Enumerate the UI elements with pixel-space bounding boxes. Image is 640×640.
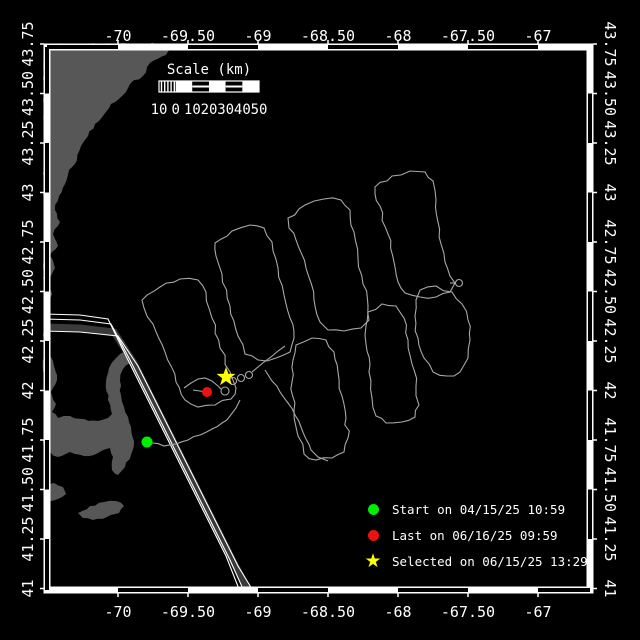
lon-label-top: -70 xyxy=(104,27,131,45)
lat-label-left: 41.50 xyxy=(19,467,37,512)
lon-label-top: -67 xyxy=(524,27,551,45)
scalebar-number: 10 xyxy=(151,102,168,118)
lon-label-bottom: -67.50 xyxy=(441,603,495,621)
scalebar-number: 20 xyxy=(201,102,218,118)
shipping-lane-band xyxy=(44,327,248,589)
lat-label-left: 41.25 xyxy=(19,516,37,561)
scalebar-number: 40 xyxy=(234,102,251,118)
shipping-lane-edge xyxy=(44,331,252,589)
lat-label-left: 42.75 xyxy=(19,219,37,264)
legend-item-selected: ★ Selected on 06/15/25 13:29 xyxy=(362,548,588,574)
lat-label-left: 41 xyxy=(19,579,37,597)
track-line xyxy=(265,370,328,461)
track-legend: Start on 04/15/25 10:59 Last on 06/16/25… xyxy=(362,496,588,574)
lat-label-right: 41.50 xyxy=(601,467,619,512)
lat-label-left: 42.50 xyxy=(19,269,37,314)
lat-label-right: 41 xyxy=(601,579,619,597)
start-dot-icon xyxy=(362,504,384,515)
lon-label-top: -68 xyxy=(384,27,411,45)
legend-label-selected: Selected on 06/15/25 13:29 xyxy=(392,554,588,569)
scalebar-number: 10 xyxy=(184,102,201,118)
lon-label-top: -68.50 xyxy=(301,27,355,45)
lon-label-bottom: -70 xyxy=(104,603,131,621)
lat-label-right: 42.75 xyxy=(601,219,619,264)
lat-label-right: 42.50 xyxy=(601,269,619,314)
lat-label-left: 41.75 xyxy=(19,417,37,462)
lat-label-right: 42 xyxy=(601,381,619,399)
track-loop xyxy=(415,286,470,376)
lon-label-bottom: -67 xyxy=(524,603,551,621)
lat-label-right: 43 xyxy=(601,183,619,201)
lat-label-left: 43.50 xyxy=(19,71,37,116)
selected-star-icon: ★ xyxy=(362,556,384,567)
scalebar-segment-filled xyxy=(242,81,259,92)
lon-label-bottom: -69.50 xyxy=(161,603,215,621)
legend-item-last: Last on 06/16/25 09:59 xyxy=(362,522,588,548)
legend-label-last: Last on 06/16/25 09:59 xyxy=(392,528,558,543)
land-polygon xyxy=(43,43,172,328)
lat-label-right: 42.25 xyxy=(601,318,619,363)
scalebar-number: 50 xyxy=(251,102,268,118)
lat-label-left: 43.75 xyxy=(19,21,37,66)
shipping-lane-edge xyxy=(44,319,243,589)
track-loop xyxy=(291,338,350,460)
lat-label-left: 43 xyxy=(19,183,37,201)
track-small-loop xyxy=(246,372,253,379)
track-small-loop xyxy=(221,387,229,395)
lat-label-left: 42.25 xyxy=(19,318,37,363)
lat-label-right: 41.75 xyxy=(601,417,619,462)
lat-label-left: 43.25 xyxy=(19,120,37,165)
lat-label-right: 43.25 xyxy=(601,120,619,165)
legend-item-start: Start on 04/15/25 10:59 xyxy=(362,496,588,522)
lat-label-left: 42 xyxy=(19,381,37,399)
track-line xyxy=(184,378,221,389)
track-loop xyxy=(365,304,419,423)
lat-label-right: 43.75 xyxy=(601,21,619,66)
land-polygon xyxy=(43,330,134,475)
scalebar-title: Scale (km) xyxy=(167,62,251,78)
track-loop xyxy=(215,225,294,361)
scalebar-number: 0 xyxy=(171,102,179,118)
lon-label-bottom: -68.50 xyxy=(301,603,355,621)
map-viewport: -70-70-69.50-69.50-69-69-68.50-68.50-68-… xyxy=(0,0,640,640)
lon-label-top: -69 xyxy=(244,27,271,45)
track-loop xyxy=(288,198,369,331)
last-marker[interactable] xyxy=(202,387,212,397)
track-small-loop xyxy=(238,375,245,382)
scalebar-segment-filled xyxy=(209,81,226,92)
lon-label-top: -69.50 xyxy=(161,27,215,45)
lon-label-bottom: -68 xyxy=(384,603,411,621)
land-polygon xyxy=(78,501,124,520)
legend-label-start: Start on 04/15/25 10:59 xyxy=(392,502,565,517)
start-marker[interactable] xyxy=(142,437,153,448)
lat-label-right: 41.25 xyxy=(601,516,619,561)
last-dot-icon xyxy=(362,530,384,541)
lon-label-bottom: -69 xyxy=(244,603,271,621)
track-small-loop xyxy=(456,280,463,287)
scalebar-number: 30 xyxy=(217,102,234,118)
scalebar-segment-filled xyxy=(176,81,193,92)
lon-label-top: -67.50 xyxy=(441,27,495,45)
selected-star-marker[interactable] xyxy=(217,367,236,385)
lat-label-right: 43.50 xyxy=(601,71,619,116)
track-loop xyxy=(375,171,455,298)
